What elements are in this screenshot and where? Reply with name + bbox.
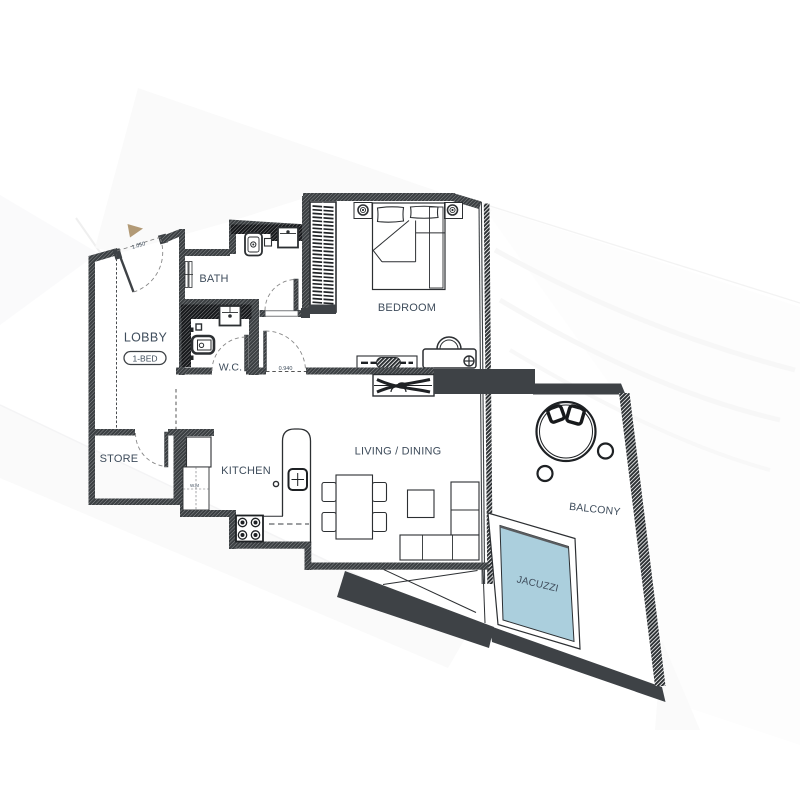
svg-text:W.C.: W.C. [219, 362, 243, 374]
svg-text:1-BED: 1-BED [132, 353, 157, 363]
svg-text:LOBBY: LOBBY [124, 331, 168, 345]
svg-text:STORE: STORE [100, 453, 139, 465]
svg-text:W.M: W.M [190, 483, 199, 488]
svg-text:LIVING / DINING: LIVING / DINING [355, 446, 442, 458]
svg-text:0.940: 0.940 [279, 366, 293, 372]
svg-text:KITCHEN: KITCHEN [221, 465, 271, 477]
svg-text:BEDROOM: BEDROOM [378, 302, 436, 314]
svg-text:BATH: BATH [199, 273, 228, 285]
